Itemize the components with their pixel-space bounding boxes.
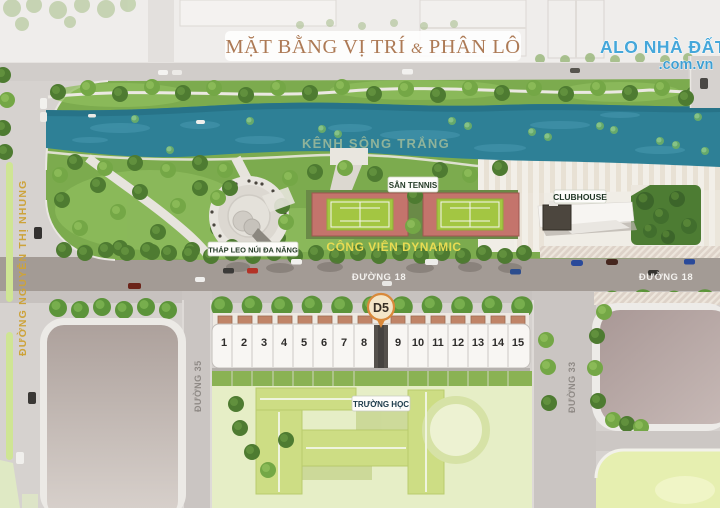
svg-text:13: 13 [472, 337, 484, 349]
svg-text:SÂN TENNIS: SÂN TENNIS [389, 181, 438, 190]
svg-text:.com.vn: .com.vn [659, 57, 714, 73]
svg-text:4: 4 [281, 337, 288, 349]
svg-text:ĐƯỜNG 18: ĐƯỜNG 18 [639, 271, 693, 283]
svg-text:CÔNG VIÊN DYNAMIC: CÔNG VIÊN DYNAMIC [326, 239, 461, 254]
svg-text:10: 10 [412, 337, 424, 349]
svg-text:12: 12 [452, 337, 464, 349]
svg-text:ĐƯỜNG NGUYỄN THỊ NHUNG: ĐƯỜNG NGUYỄN THỊ NHUNG [16, 180, 29, 357]
svg-text:14: 14 [492, 337, 505, 349]
svg-text:ĐƯỜNG 33: ĐƯỜNG 33 [566, 361, 577, 413]
svg-text:6: 6 [321, 337, 327, 349]
svg-text:2: 2 [241, 337, 247, 349]
svg-text:3: 3 [261, 337, 267, 349]
svg-text:ĐƯỜNG 18: ĐƯỜNG 18 [352, 271, 406, 283]
svg-text:TRƯỜNG HỌC: TRƯỜNG HỌC [353, 400, 409, 409]
svg-text:ALO NHÀ ĐẤT: ALO NHÀ ĐẤT [600, 36, 720, 57]
svg-text:1: 1 [221, 337, 227, 349]
svg-text:MẶT BẰNG VỊ TRÍ & PHÂN LÔ: MẶT BẰNG VỊ TRÍ & PHÂN LÔ [225, 34, 520, 58]
svg-text:11: 11 [432, 337, 444, 349]
svg-text:ĐƯỜNG 35: ĐƯỜNG 35 [192, 360, 203, 412]
svg-text:CLUBHOUSE: CLUBHOUSE [553, 192, 607, 202]
svg-text:15: 15 [512, 337, 524, 349]
svg-text:7: 7 [341, 337, 347, 349]
svg-text:THÁP LEO NÚI ĐA NĂNG: THÁP LEO NÚI ĐA NĂNG [208, 246, 298, 255]
svg-text:5: 5 [301, 337, 307, 349]
svg-text:9: 9 [395, 337, 401, 349]
svg-text:8: 8 [361, 337, 367, 349]
svg-text:KÊNH SÔNG TRẮNG: KÊNH SÔNG TRẮNG [302, 136, 450, 151]
svg-text:D5: D5 [373, 301, 389, 315]
